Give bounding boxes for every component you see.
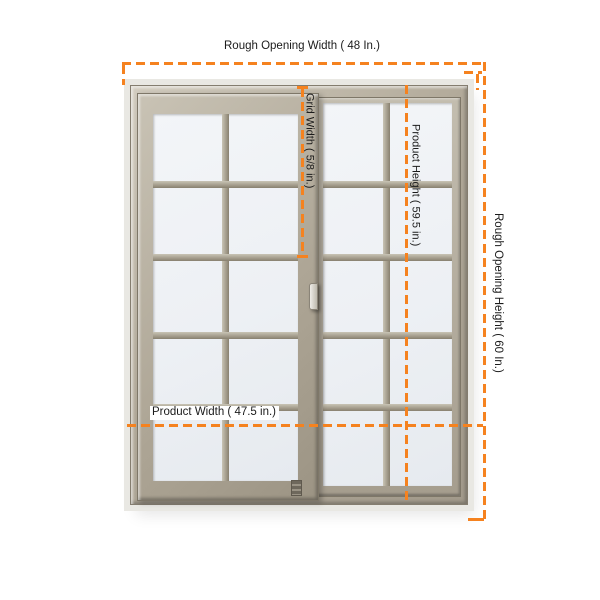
sash-track-detail <box>291 480 302 496</box>
product-height-dimension-line <box>405 85 408 505</box>
rough-opening-corner-mark-horizontal <box>464 71 482 74</box>
rough-opening-left-corner-tick <box>122 65 125 85</box>
rough-opening-bottom-tick <box>468 518 484 521</box>
window-diagram: Rough Opening Width ( 48 In.) Rough Open… <box>0 0 600 600</box>
product-height-label: Product Height ( 59.5 in.) <box>409 124 422 246</box>
muntin-bar <box>153 332 298 339</box>
muntin-bar <box>383 103 390 486</box>
rough-opening-height-dimension-line <box>483 62 486 523</box>
muntin-bar <box>323 254 452 261</box>
grid-width-label: Grid Width ( 5/8 in.) <box>303 93 316 188</box>
muntin-bar <box>153 181 298 188</box>
rough-opening-corner-mark-vertical <box>476 74 479 90</box>
rough-opening-width-label: Rough Opening Width ( 48 In.) <box>122 40 482 53</box>
product-width-label: Product Width ( 47.5 in.) <box>150 406 279 420</box>
product-width-dimension-line <box>127 424 483 427</box>
muntin-bar <box>323 332 452 339</box>
right-sash <box>314 97 461 497</box>
muntin-bar <box>153 254 298 261</box>
left-sash <box>137 93 319 501</box>
grid-width-bottom-tick <box>297 255 308 258</box>
rough-opening-width-dimension-line <box>122 62 482 65</box>
muntin-bar <box>323 404 452 411</box>
grid-width-top-tick <box>297 86 308 89</box>
sash-handle <box>309 283 318 310</box>
rough-opening-height-label: Rough Opening Height ( 60 In.) <box>491 213 504 373</box>
muntin-bar <box>323 181 452 188</box>
